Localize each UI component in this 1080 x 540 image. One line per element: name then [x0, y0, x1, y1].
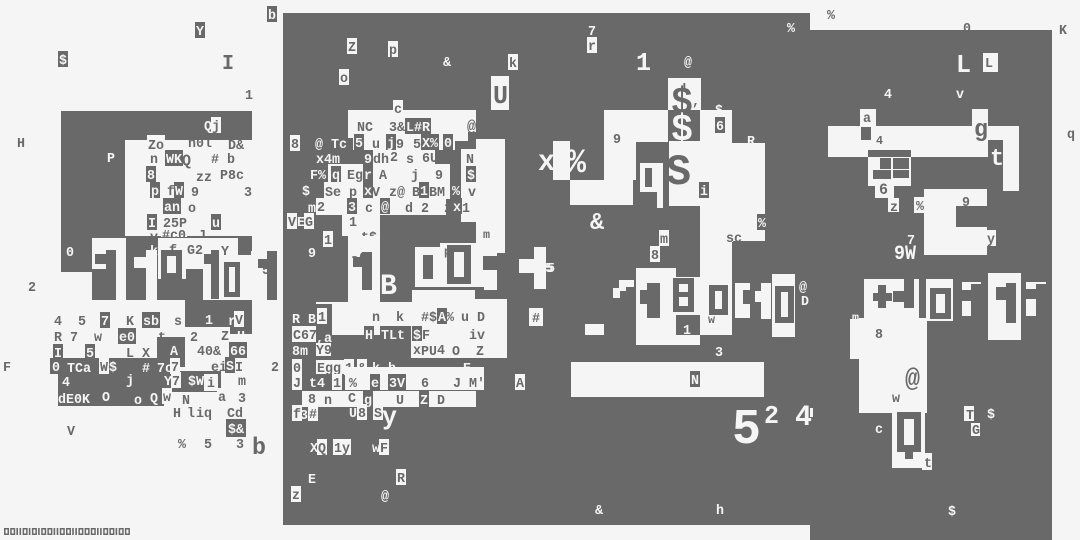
svg-text:3: 3: [348, 200, 356, 216]
svg-text:$: $: [109, 360, 117, 376]
svg-text:5: 5: [78, 314, 86, 330]
svg-text:A: A: [516, 376, 525, 392]
svg-text:C: C: [348, 391, 357, 407]
svg-text:b: b: [252, 435, 266, 462]
svg-text:o: o: [188, 201, 196, 217]
svg-text:c: c: [394, 102, 402, 118]
svg-text:2: 2: [317, 200, 325, 216]
svg-text:2: 2: [764, 401, 779, 431]
svg-text:U: U: [349, 406, 357, 422]
svg-text:7: 7: [172, 374, 180, 390]
svg-text:5: 5: [204, 437, 212, 453]
svg-text:k: k: [396, 310, 404, 326]
svg-text:V: V: [288, 215, 297, 231]
svg-text:j: j: [411, 168, 419, 184]
svg-text:m: m: [660, 232, 668, 248]
svg-text:9: 9: [435, 168, 443, 184]
svg-text:z@: z@: [389, 185, 406, 201]
svg-text:9W: 9W: [894, 243, 916, 266]
svg-text:Y: Y: [196, 24, 205, 40]
svg-text:S: S: [374, 406, 382, 422]
svg-text:1: 1: [205, 313, 213, 329]
svg-text:6: 6: [421, 376, 429, 392]
svg-text:8m: 8m: [292, 344, 308, 360]
svg-text:d: d: [405, 201, 413, 217]
svg-text:a: a: [863, 111, 872, 127]
svg-text:Q: Q: [204, 119, 212, 135]
svg-text:4: 4: [54, 314, 62, 330]
svg-text:u: u: [212, 216, 220, 232]
svg-text:NC: NC: [357, 120, 374, 136]
svg-text:@: @: [467, 118, 476, 136]
svg-text:&: &: [595, 503, 604, 519]
svg-text:H: H: [365, 328, 373, 344]
svg-text:9: 9: [613, 132, 621, 148]
svg-text:5: 5: [422, 258, 433, 281]
svg-text:C67: C67: [293, 328, 317, 344]
svg-text:Z: Z: [221, 329, 229, 345]
svg-text:e0: e0: [119, 330, 135, 346]
svg-text:G2: G2: [187, 243, 203, 259]
svg-text:D: D: [477, 310, 485, 326]
svg-text:%: %: [318, 168, 327, 184]
svg-text:L: L: [985, 56, 993, 72]
svg-text:PU: PU: [421, 344, 437, 360]
svg-text:a: a: [218, 390, 227, 406]
svg-text:2: 2: [421, 201, 429, 217]
svg-text:F: F: [310, 168, 318, 184]
svg-text:@: @: [315, 137, 324, 153]
svg-text:J: J: [293, 376, 301, 392]
svg-text:r: r: [364, 168, 372, 184]
svg-text:z: z: [292, 488, 300, 504]
svg-text:S: S: [666, 148, 691, 198]
svg-text:J: J: [453, 376, 461, 392]
svg-text:V: V: [372, 185, 381, 201]
svg-text:%: %: [567, 145, 587, 183]
svg-text:t: t: [158, 330, 166, 346]
svg-text:i: i: [207, 376, 215, 392]
svg-text:9: 9: [191, 185, 199, 201]
svg-text:7: 7: [101, 314, 109, 330]
svg-text:P: P: [107, 151, 115, 167]
svg-text:%: %: [178, 437, 187, 453]
svg-text:o: o: [134, 393, 142, 409]
svg-text:b: b: [227, 152, 235, 168]
svg-text:H: H: [17, 136, 25, 152]
svg-text:m: m: [238, 374, 246, 390]
svg-text:N: N: [691, 373, 699, 389]
svg-text:B: B: [308, 312, 317, 328]
svg-text:9: 9: [364, 152, 372, 168]
svg-text:L: L: [956, 50, 971, 80]
svg-text:Q: Q: [182, 152, 191, 170]
svg-text:Y9: Y9: [316, 343, 332, 359]
svg-text:s: s: [174, 314, 182, 330]
svg-text:U: U: [493, 81, 508, 111]
svg-text:B: B: [380, 270, 397, 304]
svg-text:m: m: [483, 228, 490, 242]
svg-text:n: n: [150, 152, 158, 168]
svg-text:v: v: [956, 87, 965, 103]
svg-text:W: W: [100, 360, 109, 376]
svg-text:N: N: [466, 152, 474, 168]
svg-text:F: F: [422, 328, 430, 344]
svg-text:c: c: [365, 201, 373, 217]
svg-text:#: #: [142, 361, 150, 377]
svg-text:%: %: [452, 184, 461, 200]
svg-text:3V: 3V: [389, 376, 406, 392]
svg-text:Z: Z: [476, 344, 484, 360]
svg-text:R: R: [292, 312, 301, 328]
svg-text:U: U: [396, 393, 404, 409]
svg-text:V: V: [235, 313, 244, 329]
svg-text:@: @: [381, 489, 390, 505]
svg-text:F: F: [3, 360, 11, 376]
svg-text:@: @: [381, 200, 390, 216]
svg-text:M': M': [469, 376, 485, 392]
svg-text:p: p: [151, 184, 159, 200]
svg-text:D: D: [801, 294, 809, 310]
svg-text:5: 5: [413, 137, 421, 153]
svg-text:%: %: [827, 8, 836, 24]
svg-text:l: l: [187, 406, 195, 422]
svg-text:$W: $W: [188, 374, 205, 390]
svg-text:WK: WK: [166, 152, 183, 168]
svg-text:,: ,: [692, 94, 700, 110]
svg-text:2: 2: [28, 280, 36, 296]
svg-text:%: %: [916, 199, 925, 215]
svg-text:#: #: [211, 152, 219, 168]
svg-text:TLt: TLt: [381, 328, 405, 344]
svg-text:b: b: [268, 8, 276, 24]
svg-text:h: h: [716, 503, 724, 519]
svg-text:ei: ei: [211, 360, 227, 376]
svg-text:P8c: P8c: [220, 168, 244, 184]
svg-text:t: t: [990, 146, 1004, 173]
svg-text:R: R: [397, 471, 406, 487]
svg-text:@: @: [905, 364, 920, 394]
svg-text:1y: 1y: [334, 441, 351, 457]
svg-text:E: E: [308, 472, 316, 488]
svg-text:$: $: [987, 407, 995, 423]
svg-text:V: V: [67, 424, 76, 440]
svg-text:h0l: h0l: [188, 136, 212, 152]
svg-text:$: $: [59, 53, 67, 69]
svg-text:z: z: [444, 201, 452, 217]
svg-text:1: 1: [462, 201, 470, 217]
svg-text:F: F: [380, 441, 388, 457]
svg-text:@: @: [684, 55, 693, 71]
svg-text:an: an: [164, 200, 180, 216]
svg-text:4: 4: [884, 87, 892, 103]
svg-text:j: j: [126, 373, 134, 389]
svg-text:D: D: [437, 393, 445, 409]
svg-text:#$: #$: [421, 310, 437, 326]
svg-text:c: c: [875, 422, 883, 438]
svg-text:n: n: [324, 393, 332, 409]
svg-text:L#R: L#R: [406, 120, 431, 136]
svg-text:2: 2: [271, 360, 279, 376]
svg-text:6U: 6U: [422, 151, 438, 167]
svg-text:R: R: [54, 330, 63, 346]
svg-text:1: 1: [318, 310, 326, 326]
svg-text:G: G: [972, 423, 980, 439]
svg-text:%: %: [349, 376, 358, 392]
svg-text:$: $: [948, 504, 956, 520]
svg-text:z: z: [890, 200, 898, 216]
svg-text:Z: Z: [420, 393, 428, 409]
svg-text:0: 0: [52, 360, 60, 376]
svg-text:T: T: [966, 408, 974, 424]
svg-text:g: g: [974, 117, 988, 144]
svg-text:1: 1: [349, 215, 357, 231]
svg-text:s: s: [406, 152, 414, 168]
svg-text:1: 1: [333, 376, 341, 392]
svg-text:Y: Y: [221, 244, 230, 260]
svg-text:1: 1: [245, 88, 253, 104]
svg-text:w: w: [163, 390, 172, 406]
svg-text:$&: $&: [228, 422, 245, 438]
svg-text:%: %: [446, 310, 455, 326]
svg-text:zz: zz: [196, 170, 212, 186]
svg-text:%: %: [758, 216, 767, 232]
svg-text:K: K: [126, 314, 135, 330]
svg-text:3: 3: [300, 408, 308, 424]
svg-text:G: G: [305, 215, 313, 231]
svg-text:A: A: [379, 168, 388, 184]
svg-text:1: 1: [683, 323, 691, 339]
svg-text:Eg: Eg: [347, 168, 363, 184]
svg-text:t: t: [924, 456, 932, 472]
svg-text:2: 2: [390, 150, 398, 166]
svg-text:t4: t4: [309, 376, 325, 392]
svg-text:W: W: [175, 184, 184, 200]
svg-text:9: 9: [962, 195, 970, 211]
svg-text:A: A: [170, 344, 179, 360]
svg-text:k: k: [509, 56, 517, 72]
svg-text:n: n: [372, 310, 380, 326]
svg-text:K: K: [1059, 23, 1068, 39]
svg-text:p: p: [389, 43, 397, 59]
svg-text:4: 4: [437, 343, 445, 359]
svg-text:f: f: [167, 184, 175, 200]
svg-text:w: w: [94, 330, 103, 346]
svg-text:%: %: [787, 21, 796, 37]
svg-text:Tc: Tc: [331, 137, 347, 153]
svg-text:3: 3: [238, 391, 246, 407]
svg-text:I: I: [222, 53, 234, 76]
svg-text:y: y: [382, 402, 397, 432]
svg-text:3: 3: [236, 437, 244, 453]
svg-text:#: #: [532, 311, 540, 327]
svg-text:BM: BM: [429, 185, 445, 201]
svg-text:5: 5: [547, 261, 555, 277]
svg-text:S: S: [226, 359, 234, 375]
svg-text:4: 4: [62, 375, 70, 391]
svg-text:Z: Z: [348, 40, 356, 56]
svg-text:6: 6: [879, 181, 888, 199]
svg-text:dE0K: dE0K: [58, 392, 91, 408]
svg-text:u: u: [372, 137, 380, 153]
svg-text:X%: X%: [422, 136, 439, 152]
svg-text:iq: iq: [196, 406, 212, 422]
svg-text:Q: Q: [318, 441, 326, 457]
svg-text:x: x: [538, 146, 555, 180]
svg-text:x4m: x4m: [316, 152, 340, 168]
svg-text:r: r: [588, 39, 596, 55]
svg-text:w: w: [708, 313, 716, 327]
svg-text:3: 3: [715, 345, 723, 361]
svg-text:8: 8: [651, 248, 659, 264]
svg-text:$: $: [302, 184, 310, 200]
svg-text:0: 0: [66, 245, 74, 261]
svg-text:&: &: [443, 55, 452, 71]
svg-text:o: o: [340, 71, 348, 87]
svg-text:Q: Q: [150, 391, 158, 407]
svg-text:9: 9: [308, 246, 316, 262]
svg-text:iv: iv: [469, 328, 486, 344]
svg-text:u: u: [461, 310, 469, 326]
svg-text:sb: sb: [143, 314, 159, 330]
svg-text:j: j: [212, 119, 220, 135]
svg-text:0: 0: [444, 136, 452, 152]
svg-text:v: v: [468, 185, 477, 201]
svg-text:5: 5: [355, 136, 363, 152]
svg-text:O: O: [452, 344, 460, 360]
svg-text:3&: 3&: [389, 120, 406, 136]
svg-text:#: #: [309, 407, 317, 423]
svg-text:dh: dh: [373, 152, 389, 168]
svg-text:R: R: [747, 134, 756, 150]
svg-text:8: 8: [875, 327, 883, 343]
svg-text:8: 8: [358, 406, 366, 422]
svg-text:q: q: [332, 168, 340, 184]
svg-text:TCa: TCa: [67, 361, 92, 377]
svg-text:1: 1: [324, 233, 332, 249]
svg-text:q: q: [1067, 127, 1075, 143]
svg-text:8: 8: [291, 137, 299, 153]
svg-text:0: 0: [963, 21, 971, 37]
svg-text:Se: Se: [325, 185, 341, 201]
svg-text:y: y: [987, 232, 996, 248]
svg-text:&: &: [590, 210, 605, 237]
svg-text:e: e: [371, 376, 379, 392]
svg-text:5: 5: [732, 402, 761, 459]
svg-text:$: $: [715, 103, 723, 119]
svg-text:4: 4: [876, 134, 883, 148]
svg-text:1: 1: [420, 184, 428, 200]
svg-text:H: H: [173, 406, 181, 422]
svg-text:$: $: [467, 168, 475, 184]
svg-text:x: x: [453, 200, 462, 216]
svg-text:8: 8: [147, 168, 155, 184]
svg-text:40&: 40&: [197, 344, 222, 360]
svg-text:3: 3: [244, 185, 252, 201]
svg-text:E: E: [297, 215, 305, 231]
svg-text:i: i: [700, 184, 708, 200]
svg-text:1: 1: [636, 48, 651, 78]
svg-text:6: 6: [716, 119, 724, 135]
svg-text:7: 7: [70, 330, 78, 346]
svg-text:O: O: [102, 390, 110, 406]
svg-text:4: 4: [795, 401, 812, 435]
